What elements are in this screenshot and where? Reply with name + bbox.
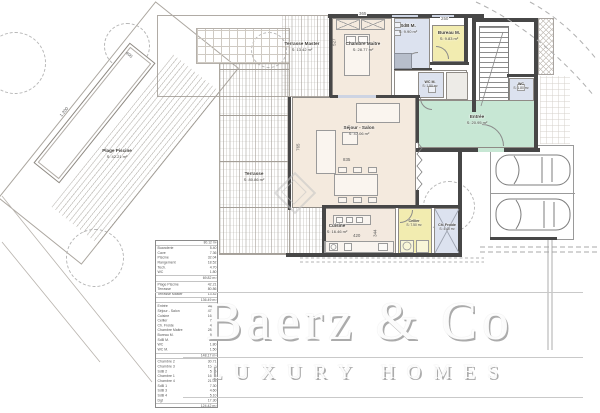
wall-segment — [329, 18, 332, 97]
wall-segment — [286, 253, 462, 257]
wall-segment — [490, 237, 557, 240]
wall-segment — [472, 18, 538, 22]
tree-circle — [0, 32, 46, 94]
room-area: S: 1.80 m² — [513, 86, 528, 90]
chair — [368, 167, 377, 173]
room-label-cuisine: Cuisine S: 16.46 m² — [307, 223, 367, 234]
sofa — [316, 130, 336, 174]
watermark-rule — [183, 397, 583, 398]
schedule-row: WC1.80 — [156, 270, 218, 275]
dining-table — [334, 174, 378, 196]
brand-tagline: LUXURY HOMES — [165, 362, 555, 382]
dimension-label: 835 — [342, 158, 351, 162]
room-area: S: 42.21 m² — [107, 154, 128, 159]
chair — [338, 167, 347, 173]
room-label-entree: Entrée S: 20.95 m² — [447, 114, 507, 125]
schedule-row: 124.42 m² — [156, 404, 218, 408]
sofa — [356, 103, 400, 123]
wall-segment — [416, 97, 419, 143]
watermark-rule — [183, 357, 583, 358]
room-area: S: 7.50 m² — [406, 223, 421, 227]
schedule-row: 69.82 m² — [156, 275, 218, 281]
wall-segment — [322, 205, 462, 208]
washer — [400, 240, 414, 253]
dimension-label: 250 — [440, 17, 449, 21]
room-area: S: 28.77 m² — [353, 47, 374, 52]
chair — [353, 167, 362, 173]
dimension-label: 365 — [358, 12, 367, 16]
wardrobe — [361, 19, 385, 30]
entry-door-gap — [478, 148, 504, 152]
wall-segment — [472, 20, 476, 112]
room-area: S: 9.90 m² — [399, 29, 417, 34]
room-area: S: 9.83 m² — [440, 36, 458, 41]
floor-plan: Terrasse Master S: 13.42 m² Chambre Mait… — [0, 0, 600, 413]
appliance — [378, 243, 388, 251]
room-area: S: 47.06 m² — [349, 131, 370, 136]
dimension-label: 420 — [352, 234, 361, 238]
schedule-row: Dgt17.30 — [156, 398, 218, 403]
terrace-decking — [219, 63, 290, 255]
schedule-header-value: 80.12 m² — [204, 241, 217, 245]
neighbor-wall-hatch — [538, 18, 554, 75]
chair — [338, 197, 347, 203]
room-area: S: 4.40 m² — [439, 227, 454, 231]
terrace-edge — [219, 254, 289, 255]
room-reduit — [446, 72, 468, 100]
room-label-plage-piscine: Plage Piscine S: 42.21 m² — [87, 148, 147, 159]
window — [392, 15, 418, 17]
appliance — [344, 243, 352, 251]
chair — [368, 197, 377, 203]
room-label-chambre-maitre: Chambre Maitre S: 28.77 m² — [333, 41, 393, 52]
dimension-label: 765 — [296, 143, 300, 152]
shower — [394, 53, 412, 69]
room-label-sdb-m: SdB M. S: 9.90 m² — [388, 23, 428, 34]
room-label-sejour: Séjour - Salon S: 47.06 m² — [329, 125, 389, 136]
brand-watermark: Baerz & Co — [185, 294, 535, 348]
parking-spaces — [490, 145, 574, 240]
room-label-terrasse-master: Terrasse Master S: 13.42 m² — [272, 41, 332, 52]
entry-paving — [540, 76, 570, 144]
room-area: S: 20.95 m² — [467, 120, 488, 125]
dryer — [416, 240, 429, 253]
room-label-bureau-m: Bureau M. S: 9.83 m² — [429, 30, 469, 41]
sink — [329, 243, 338, 251]
parking-divider — [491, 193, 575, 194]
chair — [353, 197, 362, 203]
dimension-label: 344 — [373, 229, 377, 238]
room-label-wc-m: WC M. S: 1.50 m² — [415, 80, 445, 89]
room-label-ch-froide: Ch. Froide S: 4.40 m² — [427, 223, 467, 232]
sliding-door — [338, 95, 376, 98]
room-area: S: 80.86 m² — [244, 177, 265, 182]
room-label-terrasse: Terrasse S: 80.86 m² — [224, 171, 284, 182]
wardrobe — [336, 19, 360, 30]
wall-segment — [507, 74, 534, 77]
room-area: S: 1.50 m² — [422, 84, 437, 88]
room-area: S: 16.46 m² — [327, 229, 348, 234]
room-label-wc: WC S: 1.80 m² — [506, 82, 536, 91]
room-area: S: 13.42 m² — [292, 47, 313, 52]
